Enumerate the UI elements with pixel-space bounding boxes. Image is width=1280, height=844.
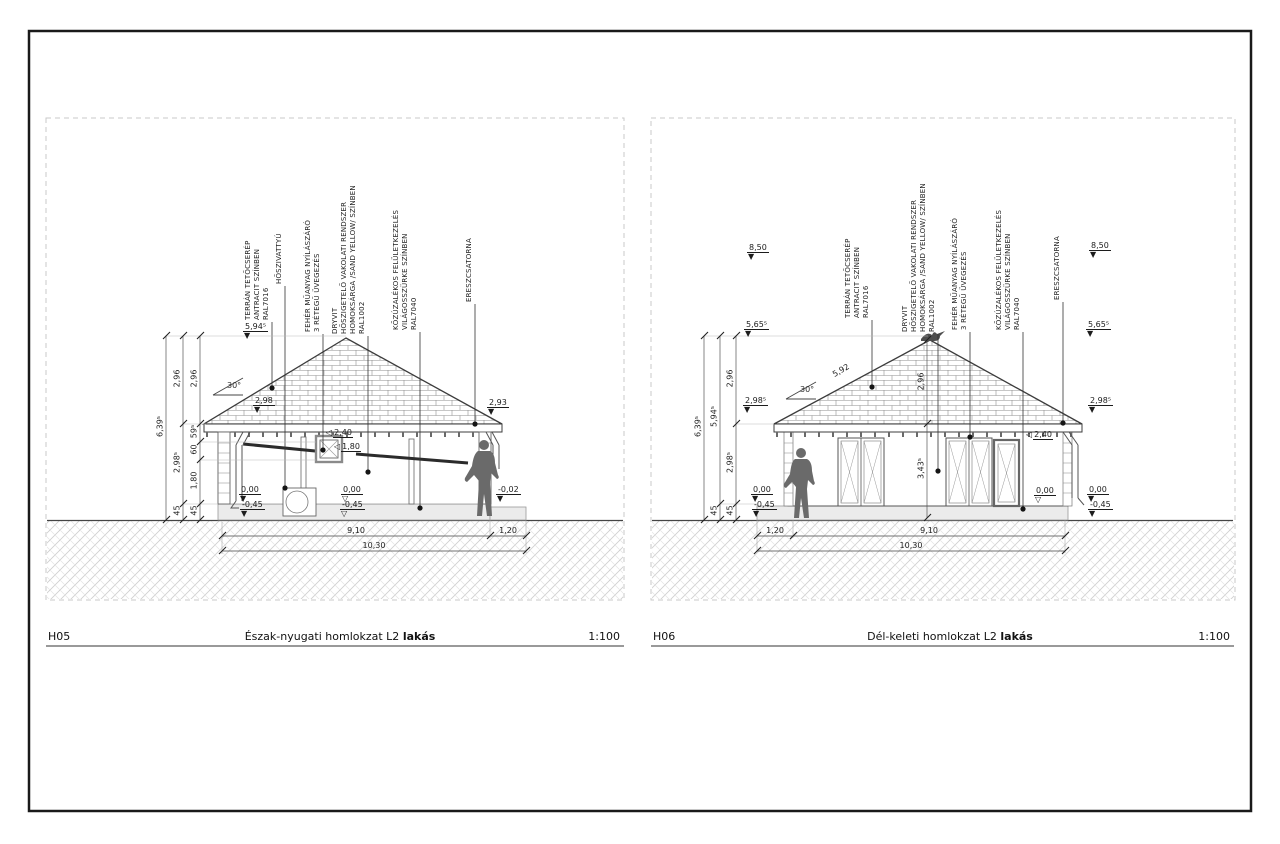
level-marker: 2,98⁵▼ xyxy=(1088,396,1113,413)
french-door-1 xyxy=(838,438,884,506)
roof-slope-label: 30° xyxy=(800,385,814,394)
drawing-scale: 1:100 xyxy=(558,630,620,643)
dim-label: 5,94⁵ xyxy=(710,399,719,435)
dim-label: 1,20 xyxy=(486,526,530,535)
drawing-scale: 1:100 xyxy=(1168,630,1230,643)
dim-label: 2,98⁵ xyxy=(726,445,735,481)
level-marker: 2,98▼ xyxy=(253,396,275,413)
note-gutter: ERESZCSATORNA xyxy=(465,172,474,302)
height-flag: ◁2,40 xyxy=(1026,430,1053,440)
plinth-step xyxy=(490,507,526,520)
note-gutter: ERESZCSATORNA xyxy=(1053,170,1062,300)
dim-label: 2,96 xyxy=(190,361,199,397)
level-marker: -0,45▽ xyxy=(340,500,365,517)
level-marker: -0,02▼ xyxy=(496,485,521,502)
hip-roof xyxy=(204,338,502,424)
french-door-2 xyxy=(946,438,992,506)
level-marker: 2,93▼ xyxy=(487,398,509,415)
note-plaster: DRYVIT HŐSZIGETELŐ VAKOLATI RENDSZER HOM… xyxy=(331,204,367,334)
note-window: FEHÉR MŰANYAG NYÍLÁSZÁRÓ 3 RÉTEGŰ ÜVEGEZ… xyxy=(304,202,322,332)
hip-roof xyxy=(774,340,1082,424)
dim-label: 9,10 xyxy=(334,526,378,535)
heat-pump-unit xyxy=(283,488,316,516)
note-plaster: DRYVIT HŐSZIGETELŐ VAKOLATI RENDSZER HOM… xyxy=(901,202,937,332)
dim-label: 45 xyxy=(726,493,735,529)
dim-label: 45 xyxy=(173,493,182,529)
note-roof-tile: TERRÁN TETŐCSERÉP ANTRACIT SZÍNBEN RAL70… xyxy=(244,190,271,320)
note-window: FEHÉR MŰANYAG NYÍLÁSZÁRÓ 3 RÉTEGŰ ÜVEGEZ… xyxy=(951,200,969,330)
drawing-code: H05 xyxy=(48,630,70,643)
level-marker: -0,45▼ xyxy=(752,500,777,517)
dim-label: 2,96 xyxy=(726,361,735,397)
dim-label: 10,30 xyxy=(889,541,933,550)
dim-label: 45 xyxy=(190,493,199,529)
dim-label: 1,20 xyxy=(753,526,797,535)
dim-label: 45 xyxy=(710,493,719,529)
dim-label: 2,96 xyxy=(917,364,926,400)
drawing-code: H06 xyxy=(653,630,675,643)
drawing-title: Észak-nyugati homlokzat L2 lakás xyxy=(150,630,530,643)
dim-label: 2,96 xyxy=(173,361,182,397)
level-marker: 5,65⁵▼ xyxy=(1086,320,1111,337)
drawing-title: Dél-keleti homlokzat L2 lakás xyxy=(760,630,1140,643)
height-flag: ◁1,80 xyxy=(334,442,361,452)
fascia xyxy=(204,424,502,432)
level-marker: 8,50▼ xyxy=(1089,241,1111,258)
level-marker: 5,94⁵▼ xyxy=(243,322,268,339)
facade-wall xyxy=(788,432,1068,506)
note-plinth: KŐZÚZALÉKOS FELÜLETKEZELÉS VILÁGOSSZÜRKE… xyxy=(995,200,1022,330)
note-plinth: KŐZÚZALÉKOS FELÜLETKEZELÉS VILÁGOSSZÜRKE… xyxy=(392,200,419,330)
dim-label: 9,10 xyxy=(907,526,951,535)
side-window xyxy=(994,440,1019,506)
note-heat-pump: HŐSZIVATTYÚ xyxy=(275,154,284,284)
dim-label: 2,98⁵ xyxy=(173,445,182,481)
level-marker: 2,98⁵▼ xyxy=(743,396,768,413)
dim-label: 10,30 xyxy=(352,541,396,550)
dim-label: 6,39⁵ xyxy=(694,409,703,445)
dim-label: 6,39⁵ xyxy=(156,409,165,445)
level-marker: -0,45▼ xyxy=(240,500,265,517)
note-roof-tile: TERRÁN TETŐCSERÉP ANTRACIT SZÍNBEN RAL70… xyxy=(844,188,871,318)
level-marker: 8,50▼ xyxy=(747,243,769,260)
dim-label: 3,43⁵ xyxy=(917,451,926,487)
roof-slope-label: 30° xyxy=(227,381,241,390)
height-flag: ◁2,40 xyxy=(326,428,353,438)
level-marker: 5,65⁵▼ xyxy=(744,320,769,337)
level-marker: -0,45▼ xyxy=(1088,500,1113,517)
level-marker: 0,00▽ xyxy=(1034,486,1056,503)
